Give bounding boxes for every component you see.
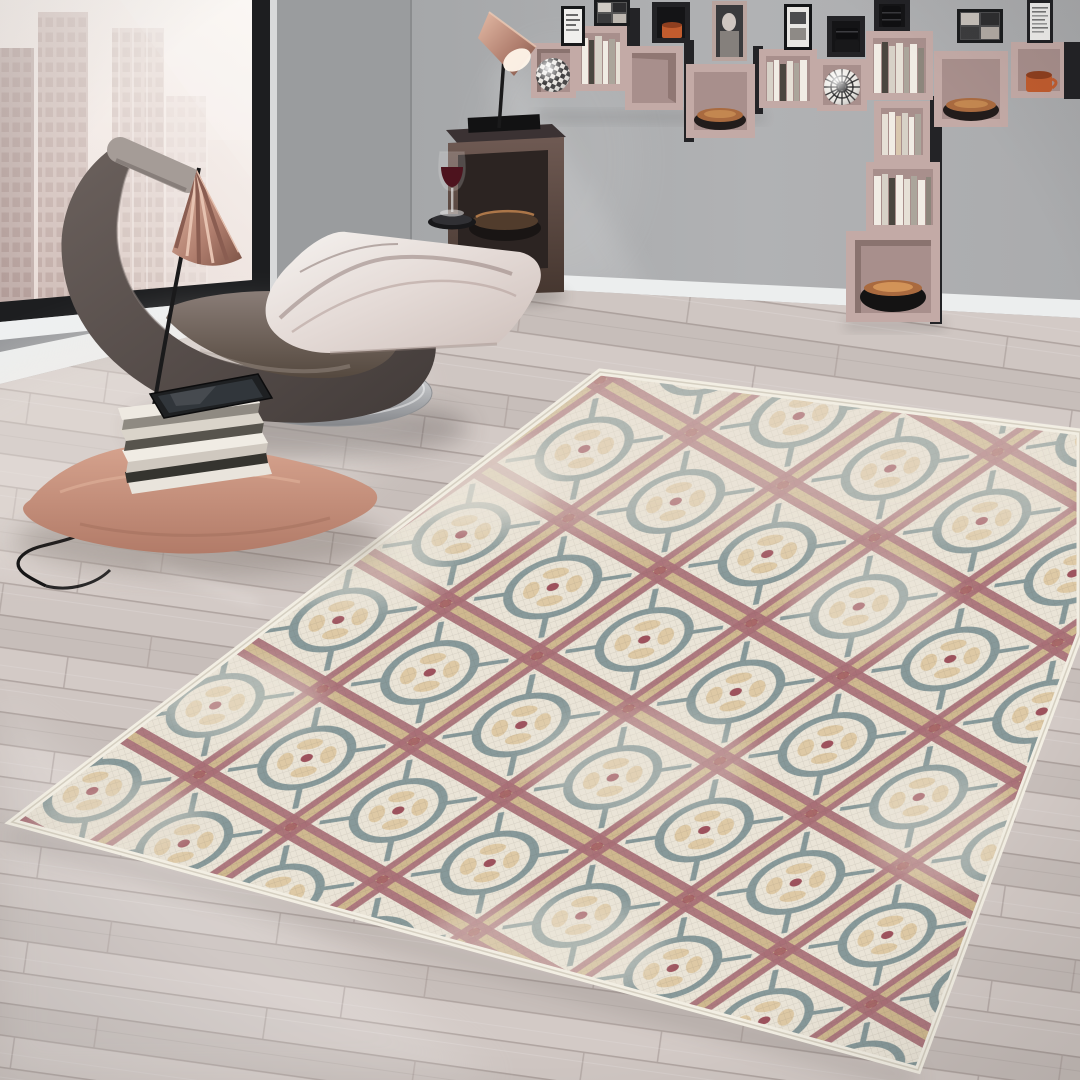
photo-vignette bbox=[0, 0, 1080, 1080]
scene-canvas bbox=[0, 0, 1080, 1080]
room-photo bbox=[0, 0, 1080, 1080]
